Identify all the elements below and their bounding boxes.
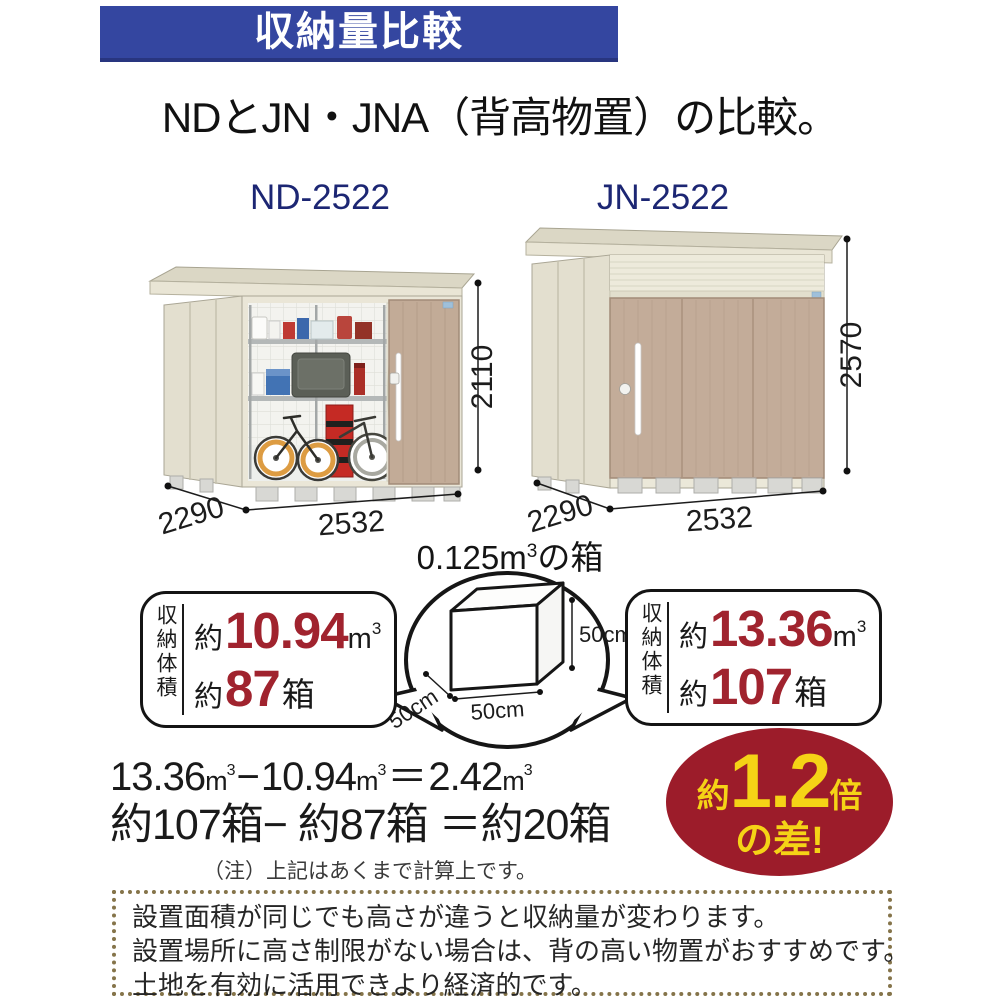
sliding-doors — [610, 298, 824, 478]
banner-title: 収納量比較 — [254, 10, 464, 54]
storage-cube — [451, 583, 563, 690]
footer-line: 設置場所に高さ制限がない場合は、背の高い物置がおすすめです。 — [132, 935, 872, 969]
shed-side-wall — [164, 296, 242, 487]
brand-tag — [443, 302, 453, 308]
page-title: NDとJN・JNA（背高物置）の比較。 — [0, 84, 1000, 145]
capacity-boxes-row: 約 87 箱 — [194, 663, 388, 714]
calc-note: （注）上記はあくまで計算上です。 — [203, 855, 537, 885]
dim-height: 2110 — [466, 345, 499, 410]
capacity-volume-row: 約 13.36 m 3 — [679, 603, 873, 654]
dim-height: 2570 — [835, 322, 868, 389]
shed-side-wall — [532, 255, 610, 488]
capacity-box-nd: 収納体積 約 10.94 m 3 約 87 箱 — [140, 591, 397, 728]
model-label-nd: ND-2522 — [185, 178, 455, 218]
door-lock — [390, 373, 399, 384]
footer-line: 土地を有効に活用できより経済的です。 — [132, 969, 872, 1000]
calc-boxes-line: 約107箱− 約87箱 ＝約20箱 — [110, 790, 610, 852]
section-banner: 収納量比較 — [100, 6, 618, 62]
door-handle — [635, 343, 641, 435]
capacity-boxes-row: 約 107 箱 — [679, 661, 873, 712]
model-label-jn: JN-2522 — [528, 178, 798, 218]
capacity-label: 収納体積 — [640, 602, 661, 715]
unit-box-bubble: 50cm 50cm 50cm — [360, 560, 650, 770]
capacity-volume-row: 約 10.94 m 3 — [194, 605, 388, 656]
comparison-infographic: 収納量比較 NDとJN・JNA（背高物置）の比較。 ND-2522 JN-252… — [0, 0, 1000, 1000]
shed-illustration-jn: 2570 2290 2532 — [510, 215, 870, 537]
capacity-label: 収納体積 — [155, 604, 176, 717]
dim-width: 2532 — [685, 501, 754, 537]
shed-interior — [248, 303, 395, 481]
difference-badge: 約 1.2 倍 の差! — [666, 728, 893, 876]
dim-depth: 2290 — [523, 488, 596, 537]
sliding-door — [389, 300, 459, 484]
capacity-box-jn: 収納体積 約 13.36 m 3 約 107 箱 — [625, 589, 882, 726]
brand-tag — [812, 292, 821, 298]
cube-dim-width: 50cm — [470, 696, 525, 725]
footer-line: 設置面積が同じでも高さが違うと収納量が変わります。 — [132, 901, 872, 935]
shutter-band — [610, 255, 824, 298]
door-lock — [620, 384, 631, 395]
footer-note-box: 設置面積が同じでも高さが違うと収納量が変わります。 設置場所に高さ制限がない場合… — [112, 890, 892, 996]
door-handle — [396, 353, 401, 441]
shed-illustration-nd: 2110 2290 2532 — [140, 255, 500, 575]
dim-depth: 2290 — [154, 490, 227, 541]
